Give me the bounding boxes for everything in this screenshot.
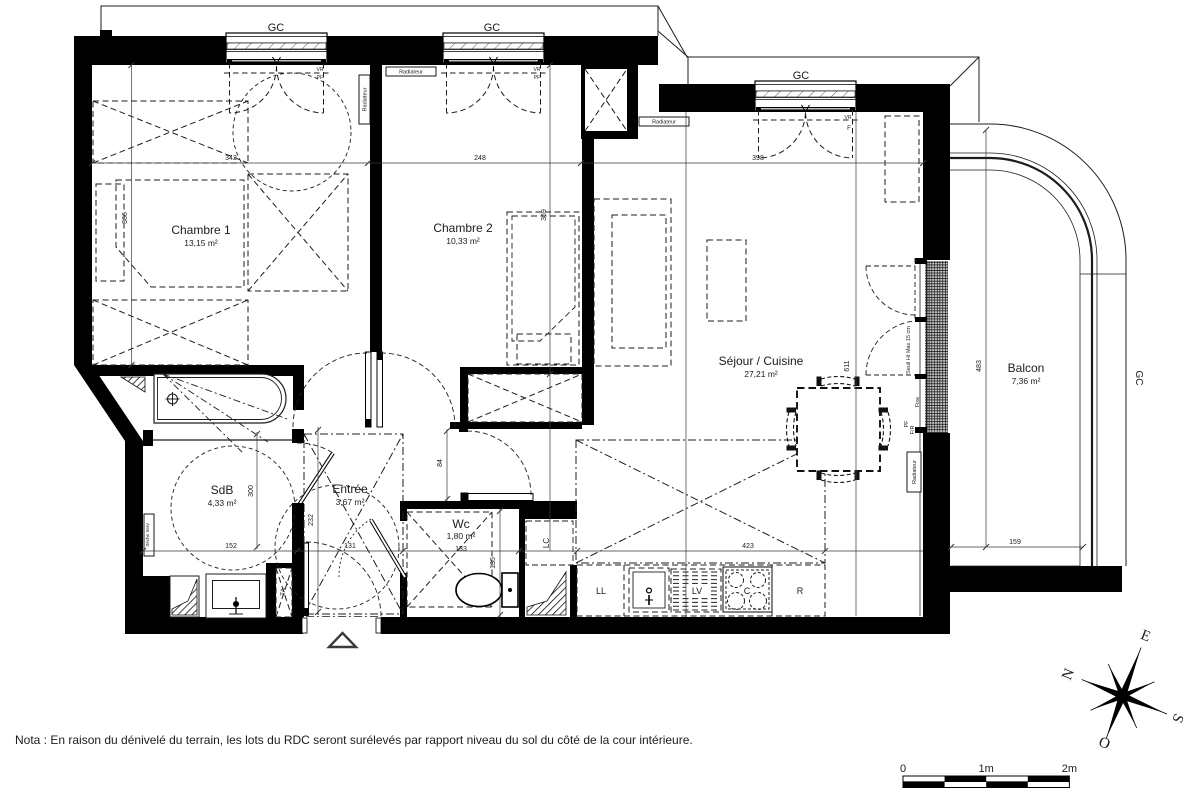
svg-text:Chambre 2: Chambre 2 bbox=[433, 221, 493, 235]
svg-text:Balcon: Balcon bbox=[1008, 361, 1045, 375]
svg-text:369: 369 bbox=[541, 209, 548, 221]
svg-text:GC: GC bbox=[484, 22, 501, 34]
svg-text:152: 152 bbox=[225, 543, 237, 550]
svg-text:84: 84 bbox=[437, 459, 444, 467]
svg-text:300: 300 bbox=[248, 485, 255, 497]
svg-text:3,67 m²: 3,67 m² bbox=[336, 497, 365, 507]
svg-text:GC: GC bbox=[793, 70, 810, 82]
svg-text:PF: PF bbox=[534, 75, 540, 81]
svg-text:1,80 m²: 1,80 m² bbox=[447, 531, 476, 541]
svg-text:R: R bbox=[797, 586, 804, 596]
svg-text:LV: LV bbox=[692, 586, 702, 596]
svg-text:248: 248 bbox=[474, 155, 486, 162]
svg-text:13,15 m²: 13,15 m² bbox=[184, 238, 218, 248]
svg-text:4,33 m²: 4,33 m² bbox=[208, 498, 237, 508]
svg-text:133: 133 bbox=[455, 546, 467, 553]
svg-text:Wc: Wc bbox=[452, 517, 469, 531]
svg-text:Entrée: Entrée bbox=[332, 482, 368, 496]
svg-text:611: 611 bbox=[844, 360, 851, 371]
svg-text:F/R: F/R bbox=[910, 426, 916, 435]
svg-text:Nota : En raison du dénivelé d: Nota : En raison du dénivelé du terrain,… bbox=[15, 733, 693, 747]
svg-text:7,36 m²: 7,36 m² bbox=[1012, 376, 1041, 386]
svg-text:2m: 2m bbox=[1062, 763, 1077, 775]
svg-text:483: 483 bbox=[976, 360, 983, 372]
svg-text:Seuil Ht Max 15 cm: Seuil Ht Max 15 cm bbox=[906, 326, 912, 374]
svg-text:GC: GC bbox=[1133, 371, 1144, 386]
svg-text:423: 423 bbox=[742, 543, 754, 550]
svg-text:342: 342 bbox=[225, 155, 237, 162]
svg-text:Fixe: Fixe bbox=[915, 397, 921, 407]
svg-text:Radiateur: Radiateur bbox=[912, 460, 918, 484]
svg-text:PF: PF bbox=[317, 75, 323, 81]
svg-text:Chambre 1: Chambre 1 bbox=[171, 223, 231, 237]
svg-text:Radiateur: Radiateur bbox=[652, 120, 676, 126]
svg-text:VR: VR bbox=[845, 115, 852, 121]
svg-text:135: 135 bbox=[490, 557, 497, 569]
svg-text:0: 0 bbox=[900, 763, 906, 775]
svg-text:398: 398 bbox=[752, 155, 764, 162]
svg-text:Radiateur: Radiateur bbox=[399, 70, 423, 76]
svg-text:10,33 m²: 10,33 m² bbox=[446, 236, 480, 246]
svg-text:Radiateur: Radiateur bbox=[363, 87, 369, 111]
svg-text:GC: GC bbox=[268, 22, 285, 34]
svg-text:232: 232 bbox=[308, 514, 315, 526]
svg-text:1m: 1m bbox=[979, 763, 994, 775]
svg-text:159: 159 bbox=[1009, 539, 1021, 546]
svg-text:C: C bbox=[744, 586, 751, 596]
svg-text:27,21 m²: 27,21 m² bbox=[744, 369, 778, 379]
svg-text:TA: TA bbox=[280, 587, 287, 595]
svg-text:F: F bbox=[847, 126, 851, 132]
svg-text:366: 366 bbox=[122, 212, 129, 224]
svg-text:Séjour / Cuisine: Séjour / Cuisine bbox=[719, 354, 804, 368]
svg-text:SdB: SdB bbox=[211, 483, 234, 497]
svg-text:VR: VR bbox=[534, 67, 541, 73]
svg-text:VR: VR bbox=[317, 67, 324, 73]
svg-text:131: 131 bbox=[344, 543, 356, 550]
svg-text:Sèche Serv: Sèche Serv bbox=[145, 523, 150, 547]
svg-text:LL: LL bbox=[596, 586, 606, 596]
